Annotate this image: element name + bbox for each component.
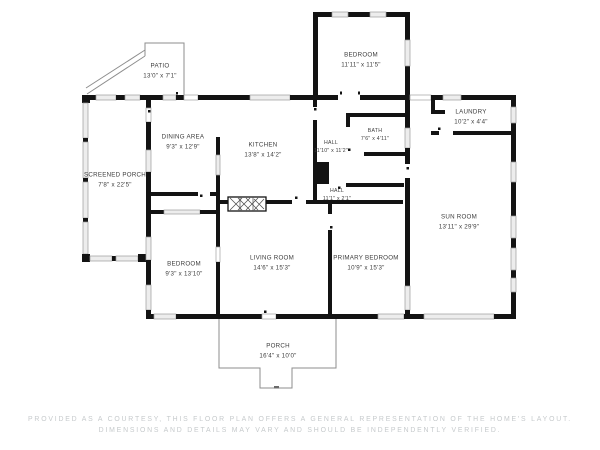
room-label-bedroom-top: BEDROOM 11'11" x 11'5" — [341, 50, 381, 69]
room-label-living-room: LIVING ROOM 14'6" x 15'3" — [250, 253, 294, 272]
floor-plan-page: BEDROOM 11'11" x 11'5" PATIO 13'0" x 7'1… — [0, 0, 600, 450]
room-dims: 7'6" x 4'11" — [361, 136, 389, 144]
room-label-laundry: LAUNDRY 10'2" x 4'4" — [454, 107, 488, 126]
room-name: PRIMARY BEDROOM — [333, 253, 398, 263]
room-name: SUN ROOM — [439, 212, 479, 222]
room-name: BEDROOM — [341, 50, 381, 60]
room-dims: 11'10" x 11'2" — [314, 148, 348, 156]
room-label-bath: BATH 7'6" x 4'11" — [361, 128, 389, 144]
room-dims: 9'3" x 13'10" — [165, 269, 202, 279]
room-name: KITCHEN — [244, 140, 281, 150]
room-dims: 9'3" x 12'9" — [162, 142, 205, 152]
room-name: PATIO — [143, 61, 177, 71]
disclaimer: PROVIDED AS A COURTESY, THIS FLOOR PLAN … — [0, 414, 600, 436]
room-name: HALL — [314, 140, 348, 148]
room-name: LIVING ROOM — [250, 253, 294, 263]
exterior-walls — [82, 12, 516, 319]
room-label-patio: PATIO 13'0" x 7'1" — [143, 61, 177, 80]
room-name: DINING AREA — [162, 132, 205, 142]
room-dims: 14'6" x 15'3" — [250, 263, 294, 273]
disclaimer-line-2: DIMENSIONS AND DETAILS MAY VARY AND SHOU… — [0, 425, 600, 436]
floor-plan-drawing — [0, 0, 600, 450]
room-dims: 10'2" x 4'4" — [454, 117, 488, 127]
room-label-bedroom-bottom: BEDROOM 9'3" x 13'10" — [165, 259, 202, 278]
room-label-sun-room: SUN ROOM 13'11" x 29'9" — [439, 212, 479, 231]
room-name: PORCH — [259, 341, 296, 351]
room-dims: 13'8" x 14'2" — [244, 150, 281, 160]
room-name: BATH — [361, 128, 389, 136]
room-label-dining-area: DINING AREA 9'3" x 12'9" — [162, 132, 205, 151]
room-label-hall-small: HALL 11'1" x 2'1" — [323, 188, 351, 204]
porch-step-mark — [274, 386, 279, 388]
room-dims: 10'9" x 15'3" — [333, 263, 398, 273]
room-dims: 7'8" x 22'5" — [84, 180, 146, 190]
room-label-screened-porch: SCREENED PORCH 7'8" x 22'5" — [84, 170, 146, 189]
room-dims: 13'0" x 7'1" — [143, 71, 177, 81]
room-name: BEDROOM — [165, 259, 202, 269]
room-name: SCREENED PORCH — [84, 170, 146, 180]
room-label-hall: HALL 11'10" x 11'2" — [314, 140, 348, 156]
disclaimer-line-1: PROVIDED AS A COURTESY, THIS FLOOR PLAN … — [0, 414, 600, 425]
room-label-primary-bedroom: PRIMARY BEDROOM 10'9" x 15'3" — [333, 253, 398, 272]
room-dims: 13'11" x 29'9" — [439, 222, 479, 232]
room-name: HALL — [323, 188, 351, 196]
room-dims: 11'11" x 11'5" — [341, 60, 381, 70]
room-name: LAUNDRY — [454, 107, 488, 117]
fireplace — [228, 197, 266, 211]
room-dims: 11'1" x 2'1" — [323, 196, 351, 204]
room-dims: 16'4" x 10'0" — [259, 351, 296, 361]
room-label-kitchen: KITCHEN 13'8" x 14'2" — [244, 140, 281, 159]
room-label-porch: PORCH 16'4" x 10'0" — [259, 341, 296, 360]
